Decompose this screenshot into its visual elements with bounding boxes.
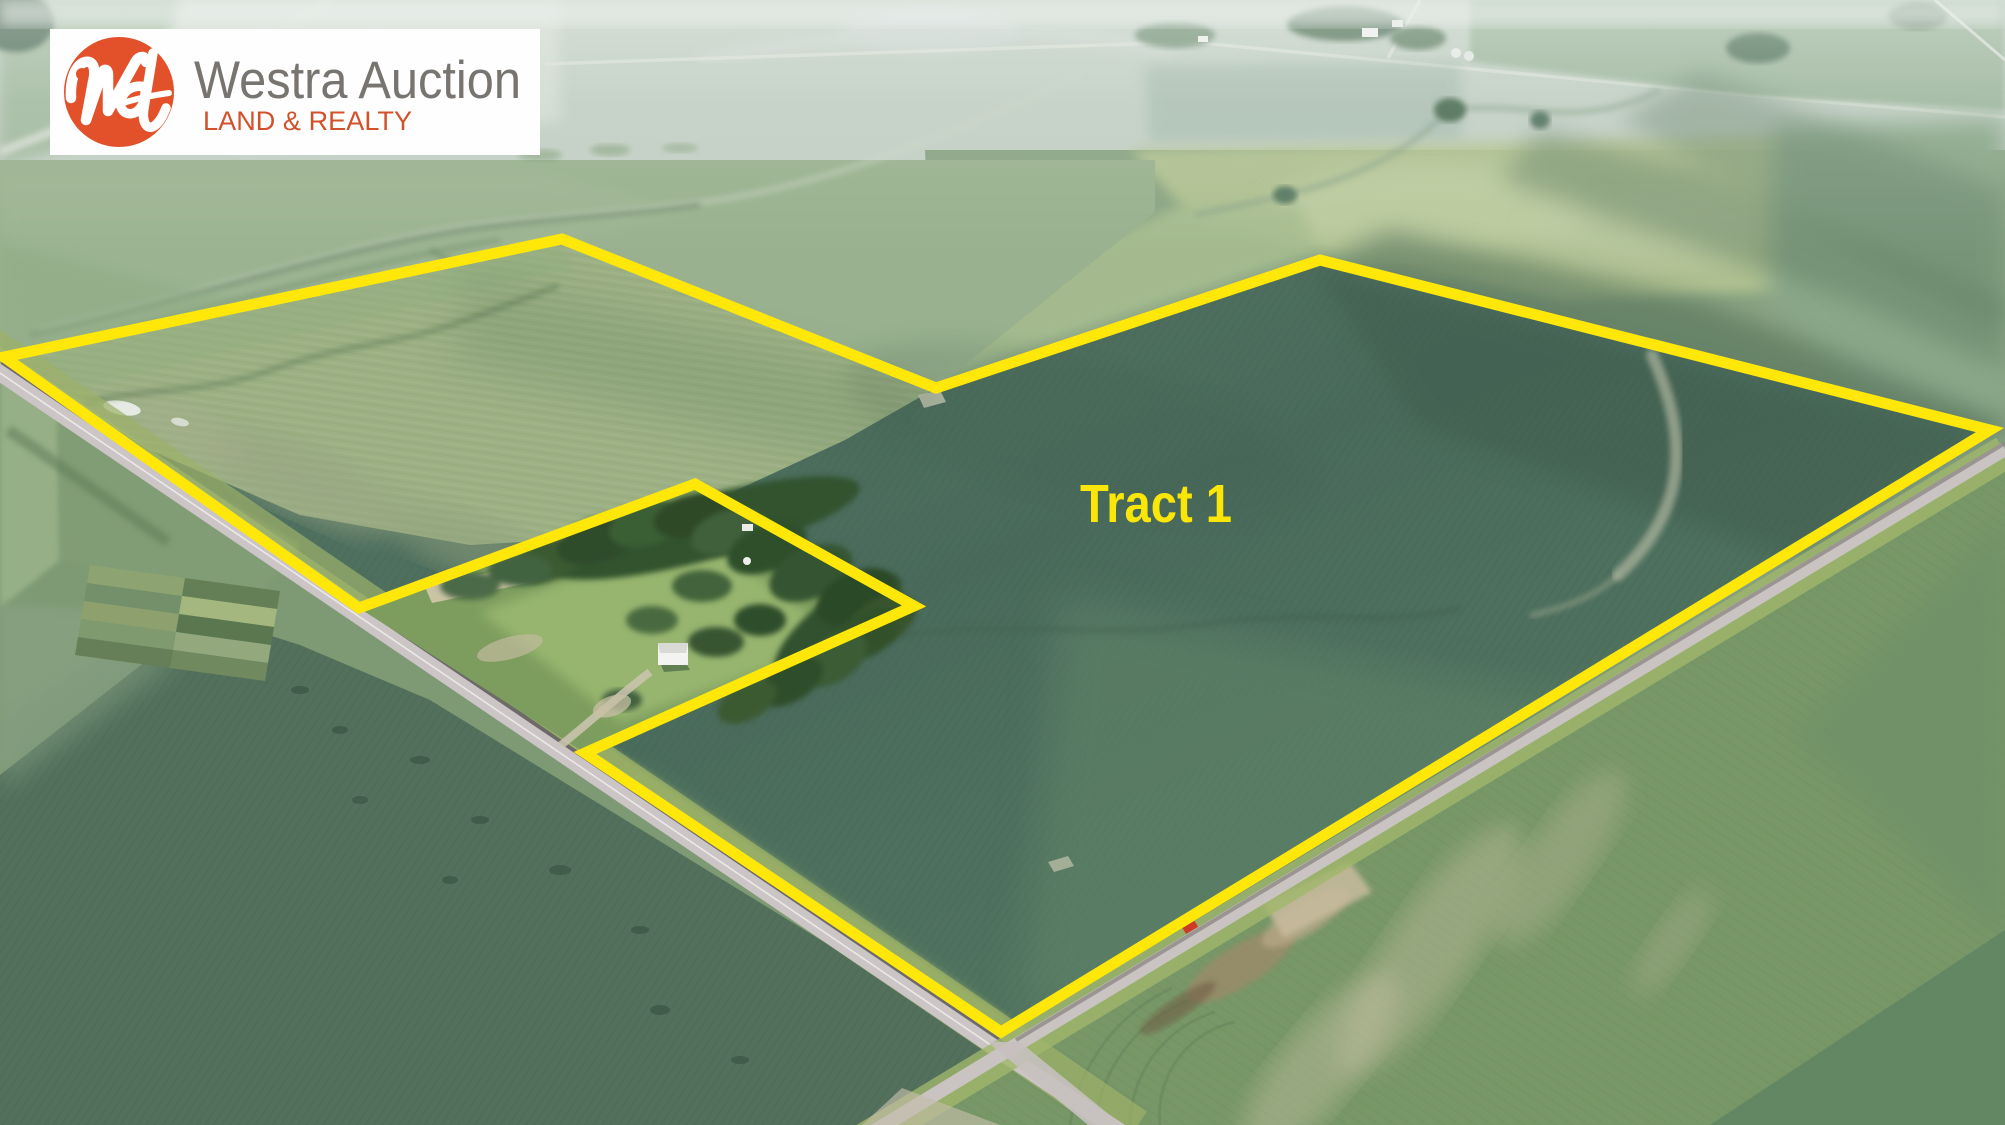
svg-text:LAND & REALTY: LAND & REALTY <box>203 106 412 136</box>
svg-text:Tract 1: Tract 1 <box>1080 474 1232 534</box>
svg-text:Westra Auction: Westra Auction <box>194 51 521 110</box>
